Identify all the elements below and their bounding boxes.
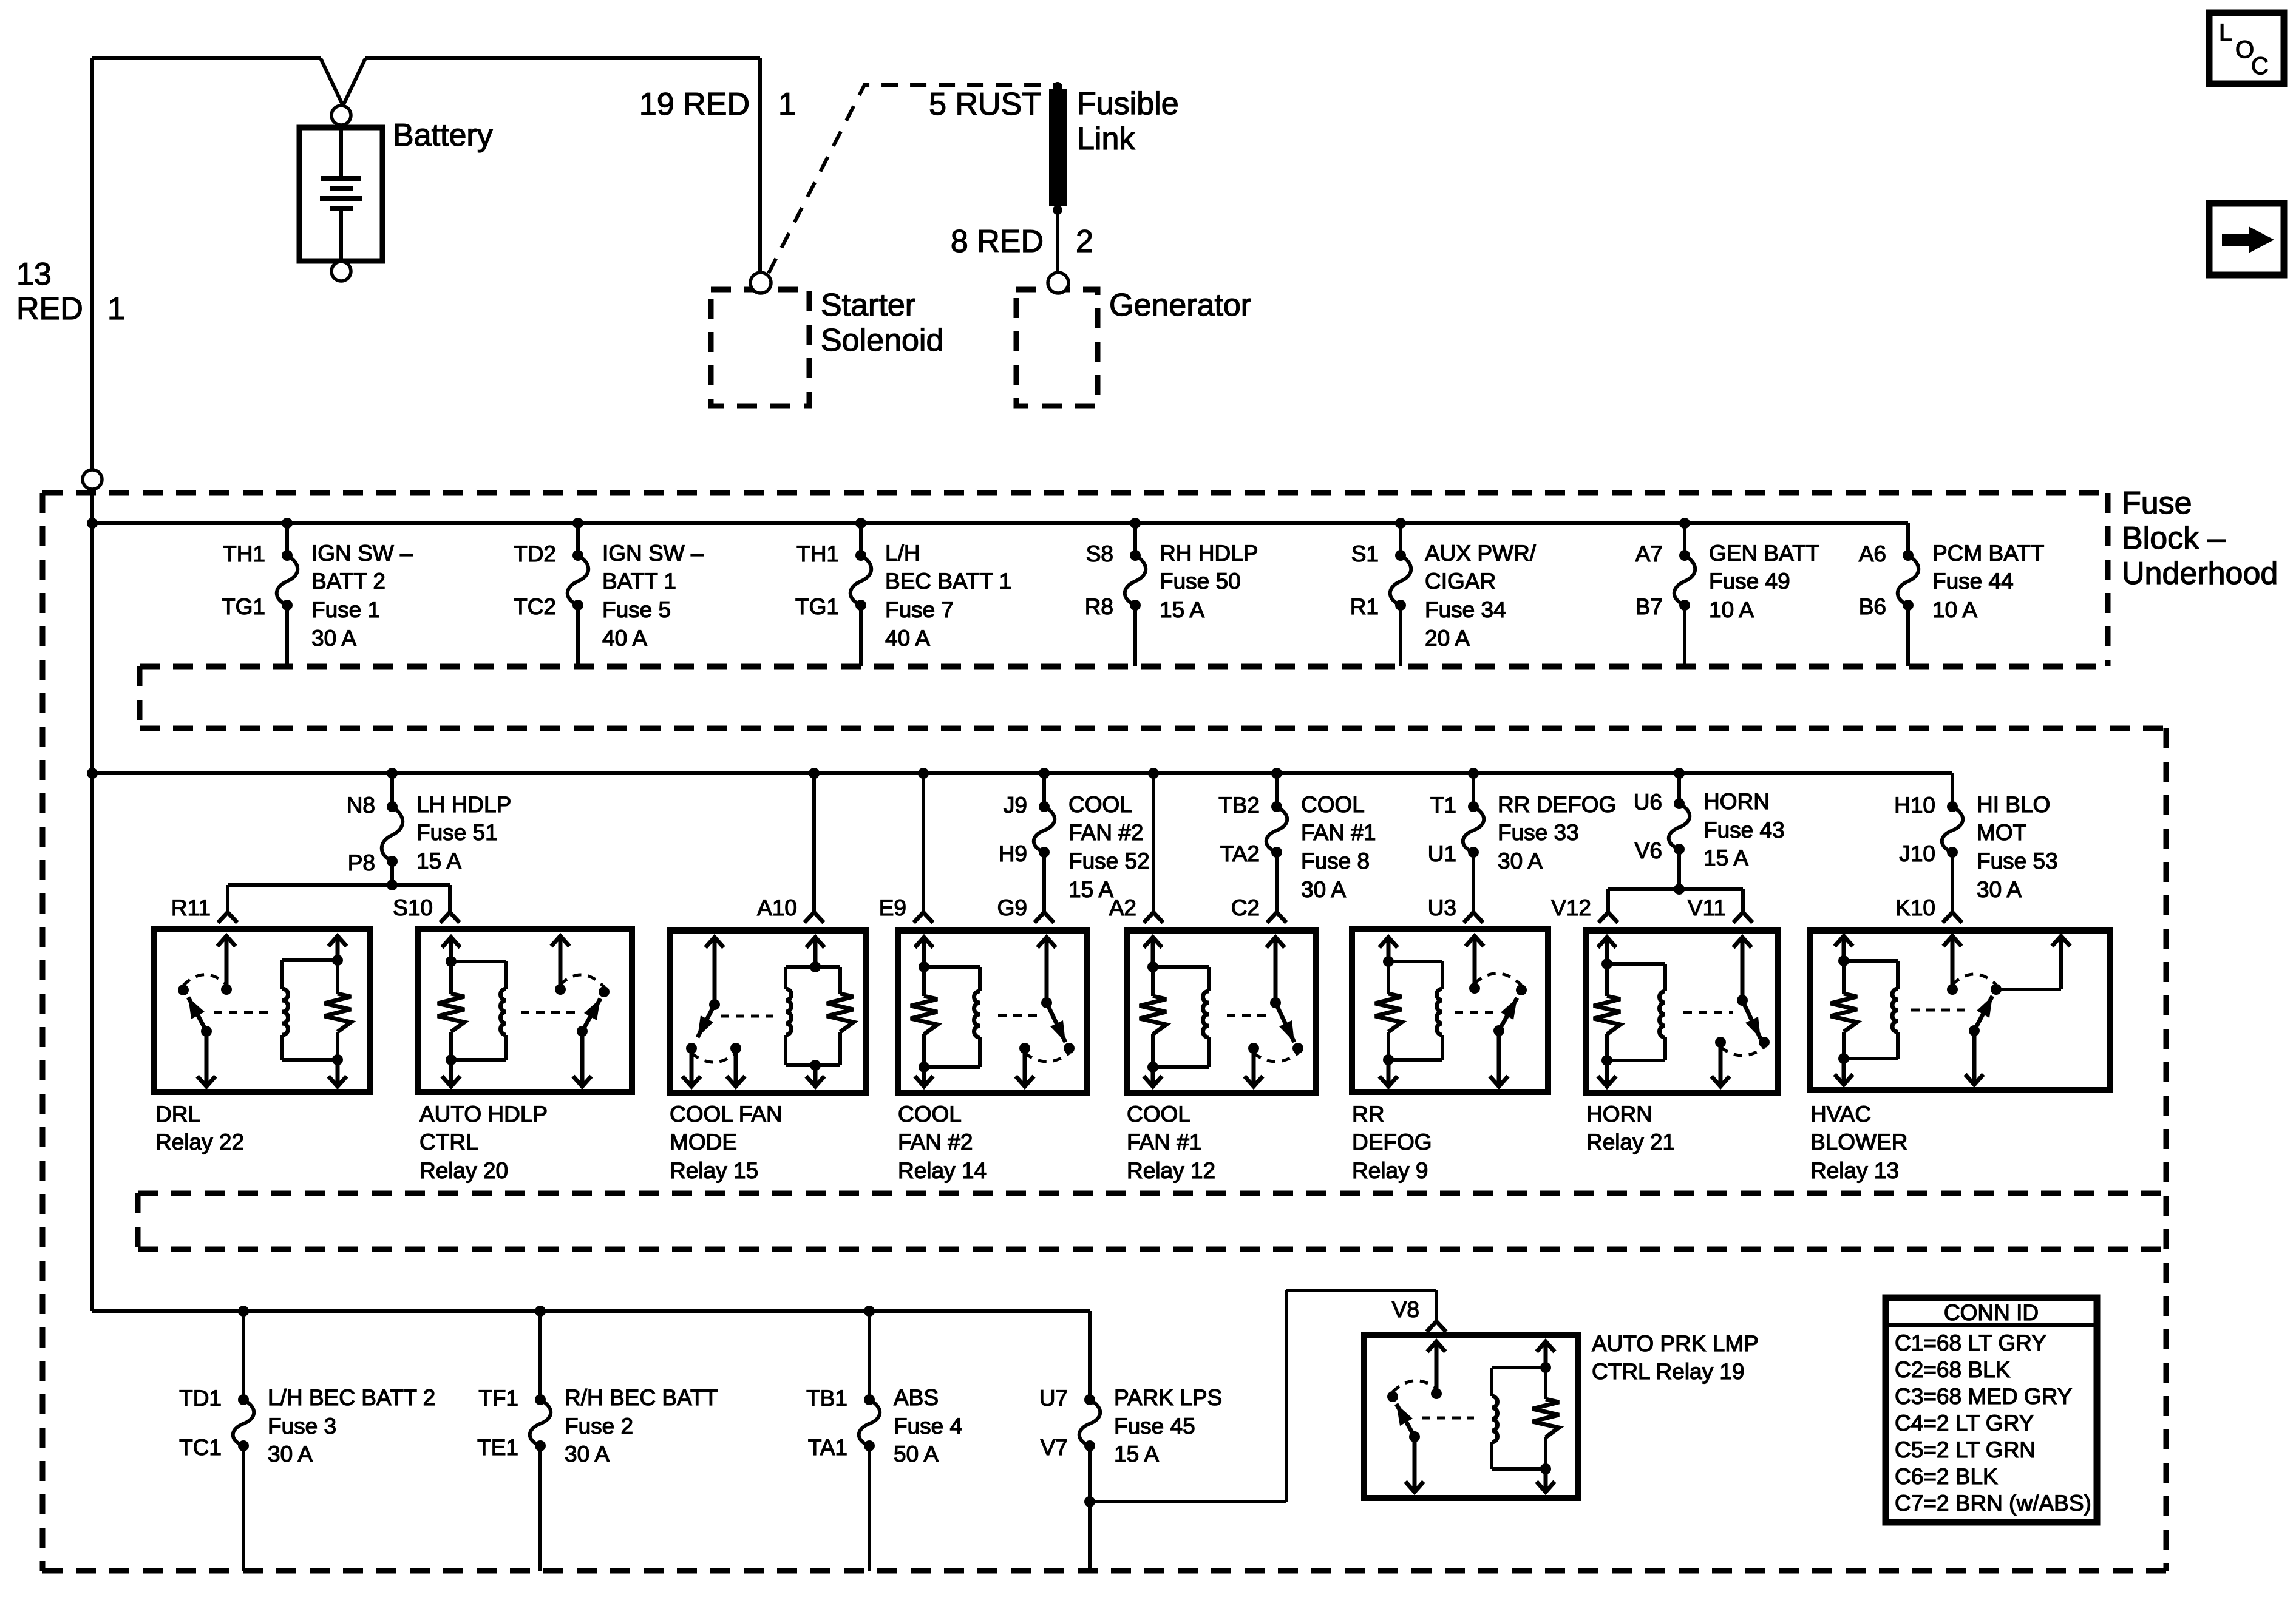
svg-text:FAN #2: FAN #2 bbox=[1068, 820, 1143, 845]
svg-text:CTRL: CTRL bbox=[419, 1130, 478, 1154]
svg-text:Fuse 5: Fuse 5 bbox=[602, 597, 671, 622]
svg-text:C: C bbox=[2251, 53, 2269, 80]
svg-text:S10: S10 bbox=[393, 895, 433, 920]
svg-text:U7: U7 bbox=[1039, 1386, 1068, 1411]
svg-text:J10: J10 bbox=[1899, 841, 1935, 866]
svg-text:C2: C2 bbox=[1231, 895, 1260, 920]
svg-text:Fuse 1: Fuse 1 bbox=[311, 597, 380, 622]
svg-text:19 RED: 19 RED bbox=[639, 87, 750, 122]
svg-text:Solenoid: Solenoid bbox=[821, 323, 943, 358]
svg-text:C2=68 BLK: C2=68 BLK bbox=[1895, 1357, 2011, 1382]
svg-text:Starter: Starter bbox=[821, 288, 915, 323]
svg-text:2: 2 bbox=[1076, 224, 1093, 259]
svg-text:Fuse 3: Fuse 3 bbox=[268, 1414, 336, 1439]
svg-text:ABS: ABS bbox=[894, 1385, 939, 1410]
svg-text:Fuse 7: Fuse 7 bbox=[885, 597, 954, 622]
svg-text:50 A: 50 A bbox=[894, 1442, 939, 1466]
svg-text:Relay 13: Relay 13 bbox=[1810, 1158, 1899, 1183]
svg-text:BATT 2: BATT 2 bbox=[311, 569, 385, 594]
svg-text:A6: A6 bbox=[1859, 541, 1886, 566]
svg-text:Fuse 8: Fuse 8 bbox=[1301, 849, 1370, 873]
svg-text:L/H: L/H bbox=[885, 541, 920, 566]
svg-text:E9: E9 bbox=[879, 895, 906, 920]
svg-text:T1: T1 bbox=[1430, 793, 1456, 818]
svg-text:Fuse 53: Fuse 53 bbox=[1977, 849, 2058, 873]
svg-text:TB1: TB1 bbox=[806, 1386, 847, 1411]
svg-text:PCM BATT: PCM BATT bbox=[1932, 541, 2044, 566]
svg-text:HORN: HORN bbox=[1703, 789, 1770, 814]
svg-text:S1: S1 bbox=[1351, 541, 1379, 566]
svg-text:15 A: 15 A bbox=[416, 849, 461, 873]
svg-text:COOL: COOL bbox=[1301, 792, 1365, 817]
svg-text:Fuse: Fuse bbox=[2122, 486, 2192, 521]
svg-text:40 A: 40 A bbox=[602, 626, 647, 651]
svg-text:1: 1 bbox=[778, 87, 796, 122]
svg-text:30 A: 30 A bbox=[311, 626, 356, 651]
svg-text:TH1: TH1 bbox=[223, 541, 265, 566]
svg-text:J9: J9 bbox=[1004, 793, 1027, 818]
svg-text:Battery: Battery bbox=[393, 118, 493, 153]
svg-text:C1=68 LT GRY: C1=68 LT GRY bbox=[1895, 1331, 2046, 1355]
svg-text:Block –: Block – bbox=[2122, 521, 2226, 556]
svg-text:N8: N8 bbox=[347, 793, 375, 818]
svg-text:FAN #1: FAN #1 bbox=[1301, 820, 1376, 845]
svg-text:LH HDLP: LH HDLP bbox=[416, 792, 511, 817]
svg-text:15 A: 15 A bbox=[1068, 877, 1113, 902]
svg-text:L: L bbox=[2219, 19, 2232, 46]
svg-text:DRL: DRL bbox=[155, 1102, 200, 1127]
svg-text:Relay 15: Relay 15 bbox=[670, 1158, 758, 1183]
svg-text:Generator: Generator bbox=[1109, 288, 1251, 323]
svg-text:IGN SW –: IGN SW – bbox=[602, 541, 704, 566]
svg-text:TD2: TD2 bbox=[514, 541, 556, 566]
svg-text:Fuse 2: Fuse 2 bbox=[565, 1414, 633, 1439]
svg-text:Link: Link bbox=[1077, 121, 1135, 157]
svg-text:20 A: 20 A bbox=[1425, 626, 1470, 651]
svg-text:TG1: TG1 bbox=[795, 594, 839, 619]
svg-text:Fuse 43: Fuse 43 bbox=[1703, 818, 1785, 842]
svg-text:TD1: TD1 bbox=[179, 1386, 222, 1411]
svg-text:30 A: 30 A bbox=[1301, 877, 1346, 902]
svg-text:10 A: 10 A bbox=[1709, 597, 1754, 622]
svg-text:K10: K10 bbox=[1895, 895, 1935, 920]
svg-text:B7: B7 bbox=[1635, 594, 1663, 619]
svg-text:V12: V12 bbox=[1551, 895, 1591, 920]
svg-text:COOL: COOL bbox=[1068, 792, 1132, 817]
svg-text:V7: V7 bbox=[1041, 1435, 1068, 1460]
svg-text:U6: U6 bbox=[1634, 790, 1662, 815]
svg-text:RR DEFOG: RR DEFOG bbox=[1498, 792, 1616, 817]
svg-text:30 A: 30 A bbox=[1977, 877, 2022, 902]
svg-text:IGN SW –: IGN SW – bbox=[311, 541, 413, 566]
svg-text:HORN: HORN bbox=[1586, 1102, 1652, 1127]
svg-text:A7: A7 bbox=[1635, 541, 1663, 566]
svg-text:R11: R11 bbox=[171, 895, 211, 920]
svg-text:10 A: 10 A bbox=[1932, 597, 1977, 622]
svg-text:COOL: COOL bbox=[898, 1102, 962, 1127]
svg-text:HI BLO: HI BLO bbox=[1977, 792, 2050, 817]
svg-text:Relay 12: Relay 12 bbox=[1127, 1158, 1215, 1183]
svg-text:5 RUST: 5 RUST bbox=[929, 87, 1041, 122]
svg-text:U1: U1 bbox=[1428, 841, 1456, 866]
svg-text:TC1: TC1 bbox=[179, 1435, 222, 1460]
svg-text:Fuse 44: Fuse 44 bbox=[1932, 569, 2014, 594]
svg-text:Fuse 51: Fuse 51 bbox=[416, 820, 498, 845]
svg-text:15 A: 15 A bbox=[1703, 846, 1748, 870]
svg-text:CONN ID: CONN ID bbox=[1944, 1300, 2039, 1325]
svg-text:L/H BEC BATT 2: L/H BEC BATT 2 bbox=[268, 1385, 435, 1410]
svg-text:Fuse 45: Fuse 45 bbox=[1114, 1414, 1195, 1439]
svg-text:B6: B6 bbox=[1859, 594, 1886, 619]
svg-text:MOT: MOT bbox=[1977, 820, 2026, 845]
svg-text:R/H BEC BATT: R/H BEC BATT bbox=[565, 1385, 718, 1410]
svg-text:C4=2 LT GRY: C4=2 LT GRY bbox=[1895, 1411, 2034, 1436]
svg-text:15 A: 15 A bbox=[1114, 1442, 1159, 1466]
svg-text:BLOWER: BLOWER bbox=[1810, 1130, 1907, 1154]
svg-text:AUTO HDLP: AUTO HDLP bbox=[419, 1102, 548, 1127]
svg-text:30 A: 30 A bbox=[565, 1442, 610, 1466]
svg-text:Fuse 50: Fuse 50 bbox=[1160, 569, 1241, 594]
svg-text:Relay 22: Relay 22 bbox=[155, 1130, 244, 1154]
svg-text:P8: P8 bbox=[348, 850, 375, 875]
svg-text:Relay 14: Relay 14 bbox=[898, 1158, 987, 1183]
svg-text:C6=2 BLK: C6=2 BLK bbox=[1895, 1464, 1998, 1489]
svg-text:30 A: 30 A bbox=[1498, 849, 1543, 873]
svg-text:Fuse 33: Fuse 33 bbox=[1498, 820, 1579, 845]
svg-text:TE1: TE1 bbox=[477, 1435, 518, 1460]
svg-text:A10: A10 bbox=[757, 895, 797, 920]
svg-text:V8: V8 bbox=[1392, 1297, 1419, 1322]
svg-text:H10: H10 bbox=[1894, 793, 1935, 818]
svg-text:CTRL Relay 19: CTRL Relay 19 bbox=[1592, 1359, 1745, 1384]
svg-text:COOL: COOL bbox=[1127, 1102, 1190, 1127]
svg-text:8 RED: 8 RED bbox=[951, 224, 1044, 259]
svg-text:TH1: TH1 bbox=[796, 541, 839, 566]
svg-text:U3: U3 bbox=[1428, 895, 1456, 920]
svg-text:H9: H9 bbox=[999, 841, 1027, 866]
svg-text:Relay 9: Relay 9 bbox=[1352, 1158, 1428, 1183]
svg-text:C5=2 LT GRN: C5=2 LT GRN bbox=[1895, 1437, 2036, 1462]
svg-text:DEFOG: DEFOG bbox=[1352, 1130, 1432, 1154]
svg-text:Fuse 34: Fuse 34 bbox=[1425, 597, 1506, 622]
svg-text:RED: RED bbox=[16, 291, 83, 327]
svg-text:HVAC: HVAC bbox=[1810, 1102, 1871, 1127]
svg-text:BATT 1: BATT 1 bbox=[602, 569, 676, 594]
svg-text:Relay 21: Relay 21 bbox=[1586, 1130, 1675, 1154]
svg-text:Relay 20: Relay 20 bbox=[419, 1158, 508, 1183]
svg-text:Fuse 4: Fuse 4 bbox=[894, 1414, 962, 1439]
svg-text:R1: R1 bbox=[1350, 594, 1379, 619]
svg-text:Fuse 49: Fuse 49 bbox=[1709, 569, 1790, 594]
svg-text:TB2: TB2 bbox=[1218, 793, 1260, 818]
svg-text:RR: RR bbox=[1352, 1102, 1384, 1127]
svg-text:FAN #1: FAN #1 bbox=[1127, 1130, 1201, 1154]
svg-text:PARK LPS: PARK LPS bbox=[1114, 1385, 1222, 1410]
svg-text:CIGAR: CIGAR bbox=[1425, 569, 1496, 594]
svg-text:1: 1 bbox=[107, 291, 125, 327]
svg-text:30 A: 30 A bbox=[268, 1442, 313, 1466]
svg-text:RH HDLP: RH HDLP bbox=[1160, 541, 1258, 566]
svg-text:AUX PWR/: AUX PWR/ bbox=[1425, 541, 1537, 566]
svg-text:TC2: TC2 bbox=[514, 594, 556, 619]
svg-text:Fusible: Fusible bbox=[1077, 86, 1179, 121]
svg-text:G9: G9 bbox=[997, 895, 1027, 920]
svg-text:TG1: TG1 bbox=[222, 594, 265, 619]
svg-text:R8: R8 bbox=[1085, 594, 1113, 619]
svg-text:V6: V6 bbox=[1635, 838, 1662, 863]
svg-text:15 A: 15 A bbox=[1160, 597, 1204, 622]
svg-text:Underhood: Underhood bbox=[2122, 556, 2278, 591]
svg-text:MODE: MODE bbox=[670, 1130, 737, 1154]
svg-text:13: 13 bbox=[16, 257, 52, 292]
svg-text:S8: S8 bbox=[1086, 541, 1113, 566]
svg-text:AUTO PRK LMP: AUTO PRK LMP bbox=[1592, 1331, 1759, 1356]
svg-text:TF1: TF1 bbox=[478, 1386, 518, 1411]
svg-text:V11: V11 bbox=[1688, 895, 1726, 920]
svg-text:Fuse 52: Fuse 52 bbox=[1068, 849, 1150, 873]
svg-text:40 A: 40 A bbox=[885, 626, 930, 651]
svg-text:COOL FAN: COOL FAN bbox=[670, 1102, 783, 1127]
svg-text:TA2: TA2 bbox=[1220, 841, 1260, 866]
svg-text:C7=2 BRN (w/ABS): C7=2 BRN (w/ABS) bbox=[1895, 1491, 2091, 1516]
svg-text:TA1: TA1 bbox=[808, 1435, 847, 1460]
svg-text:GEN BATT: GEN BATT bbox=[1709, 541, 1819, 566]
svg-text:BEC BATT 1: BEC BATT 1 bbox=[885, 569, 1011, 594]
svg-text:C3=68 MED GRY: C3=68 MED GRY bbox=[1895, 1384, 2072, 1409]
svg-text:FAN #2: FAN #2 bbox=[898, 1130, 973, 1154]
